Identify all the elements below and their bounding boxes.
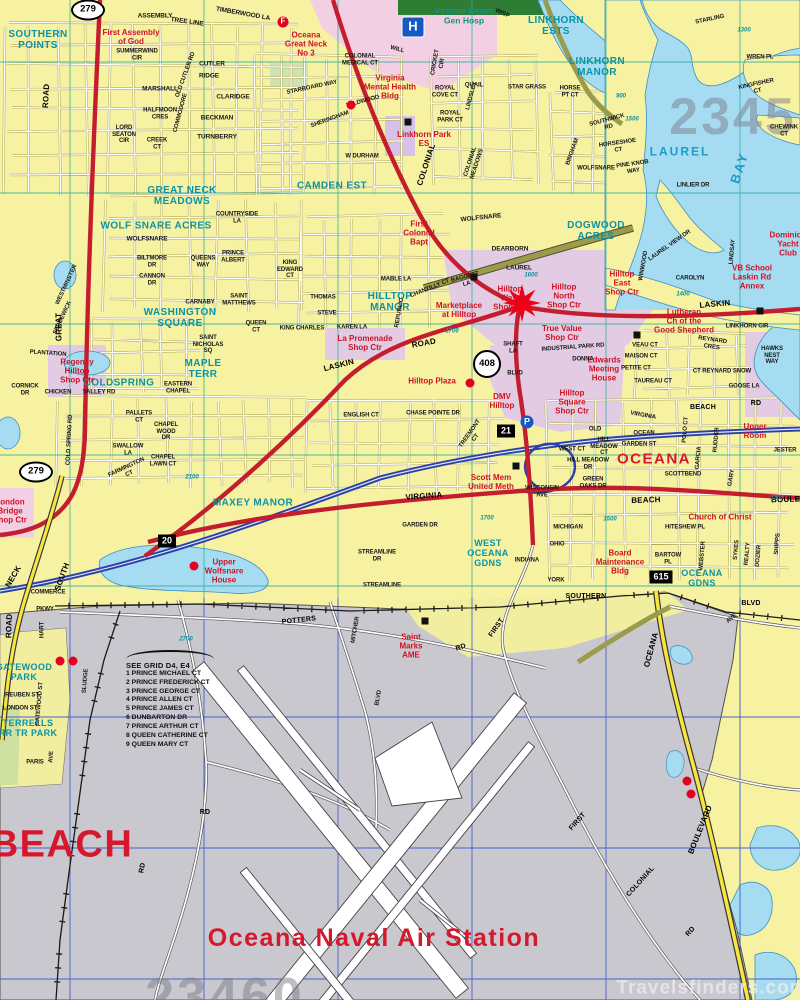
nbhd-label-wolf-snare-acres: WOLF SNARE ACRES	[100, 220, 211, 231]
street-bold-label-virginia: VIRGINIA	[405, 491, 443, 503]
street-label-webster: WEBSTER	[698, 541, 707, 571]
grid-num-label-2345: 2345	[669, 88, 797, 146]
street-bold-label-potters: POTTERS	[281, 615, 316, 626]
poi-label-dmv-hilltop: DMV Hilltop	[490, 393, 515, 411]
fire-station-icon: F	[278, 17, 289, 28]
street-bold-label-colonial: COLONIAL	[625, 865, 656, 899]
nbhd-label-maxey-manor: MAXEY MANOR	[213, 497, 293, 508]
street-bold-label-rd: RD	[138, 862, 148, 874]
street-label-laurel-view-dr: LAUREL VIEW DR	[648, 229, 693, 263]
poi-label-london-bridge-shop-ctr: London Bridge Shop Ctr	[0, 499, 27, 526]
street-label-ct-reynard-snow: CT REYNARD SNOW	[693, 369, 751, 376]
street-label-king-edward-ct: KING EDWARD CT	[277, 260, 303, 280]
grid-item: 7 PRINCE ARTHUR CT	[126, 723, 256, 732]
street-label-pallets-ct: PALLETS CT	[126, 410, 152, 423]
street-label-chapel-wood-dr: CHAPEL WOOD DR	[154, 422, 178, 442]
street-label-royal-park-ct: ROYAL PARK CT	[437, 110, 463, 123]
nbhd-label-coldspring: COLDSPRING	[84, 377, 155, 388]
street-label-turnberry: TURNBERRY	[197, 133, 237, 140]
grid-reference-box: SEE GRID D4, E4 1 PRINCE MICHAEL CT2 PRI…	[126, 650, 256, 749]
street-label-york: YORK	[548, 578, 565, 585]
poi-label-hilltop-west-shop-ctr: Hilltop West Shop Ctr	[493, 286, 527, 313]
range-label-2700: 2700	[179, 637, 192, 644]
poi-label-edwards-meeting-house: Edwards Meeting House	[587, 357, 620, 384]
water-lbl-label-laurel: LAUREL	[650, 145, 711, 158]
nbhd-label-oceana-gdns: OCEANA GDNS	[681, 568, 722, 588]
street-label-will: WILL	[389, 45, 405, 55]
street-label-veau-ct: VEAU CT	[632, 343, 658, 350]
street-label-saint-nicholas-sq: SAINT NICHOLAS SQ	[193, 335, 224, 355]
street-label-tree-line: TREE LINE	[170, 16, 204, 28]
street-label-bartow-pl: BARTOW PL	[655, 552, 681, 565]
big-red-label-oceana-naval-air-station: Oceana Naval Air Station	[208, 924, 540, 952]
street-label-taureau-ct: TAUREAU CT	[634, 379, 672, 386]
poi-label-first-colonial-bapt: First Colonial Bapt	[403, 221, 435, 248]
grid-item: 1 PRINCE MICHAEL CT	[126, 670, 256, 679]
poi-label-upper-room: Upper Room	[743, 423, 766, 441]
street-label-chewink-ct: CHEWINK CT	[770, 124, 798, 137]
street-label-cornick-dr: CORNICK DR	[11, 383, 38, 396]
poi-label-hilltop-east-shop-ctr: Hilltop East Shop Ctr	[605, 271, 639, 298]
street-label-swallow-la: SWALLOW LA	[113, 443, 144, 456]
street-label-cold-spring-rd: COLD SPRING RD	[65, 415, 74, 466]
map-canvas[interactable]: 2792794082021615BEACHOceana Naval Air St…	[0, 0, 800, 1000]
grid-item: 9 QUEEN MARY CT	[126, 741, 256, 750]
street-label-king-charles: KING CHARLES	[280, 326, 324, 333]
range-label-1700: 1700	[480, 516, 493, 523]
poi-dot-marker	[56, 657, 65, 666]
street-label-realty: REALTY	[744, 542, 753, 565]
street-label-valley-rd: VALLEY RD	[83, 390, 116, 397]
street-label-colonial-meadows: COLONIAL MEADOWS	[463, 146, 485, 180]
shield-box-label-20: 20	[158, 535, 176, 548]
street-label-dozier: DOZIER	[755, 545, 764, 568]
grid-item: 3 PRINCE GEORGE CT	[126, 688, 256, 697]
street-bold-label-colonial: COLONIAL	[416, 143, 438, 187]
street-label-ocean: OCEAN	[633, 431, 654, 438]
street-label-garden-dr: GARDEN DR	[402, 523, 437, 530]
street-label-colonial-medical-ct: COLONIAL MEDICAL CT	[342, 53, 378, 66]
street-bold-label-southern: SOUTHERN	[566, 593, 607, 601]
street-label-scottbend: SCOTTBEND	[665, 472, 701, 479]
big-red-label-beach: BEACH	[0, 824, 133, 867]
street-label-cricket-cir: CRICKET CIR	[430, 49, 448, 77]
street-label-wolfsnare: WOLFSNARE	[460, 212, 502, 224]
street-label-rudder: RUDDER	[713, 427, 722, 453]
building-marker	[634, 332, 641, 339]
street-label-queens-way: QUEENS WAY	[191, 255, 216, 268]
street-label-ohio: OHIO	[550, 542, 565, 549]
street-label-hill-meadow-ct: HILL MEADOW CT	[590, 437, 617, 457]
street-label-blvd: BLVD	[507, 371, 523, 378]
street-label-old-cutler-rd: OLD CUTLER RD	[175, 51, 198, 98]
street-label-lord-seaton-cir: LORD SEATON CIR	[112, 125, 136, 145]
street-label-streamline-dr: STREAMLINE DR	[358, 549, 396, 562]
street-label-quail: QUAIL	[465, 83, 483, 90]
street-bold-label-rd: RD	[455, 643, 467, 654]
nbhd-label-west-oceana-gdns: WEST OCEANA GDNS	[467, 538, 508, 568]
street-label-thomas: THOMAS	[310, 295, 335, 302]
street-bold-label-road: ROAD	[411, 337, 437, 350]
street-label-hart: HART	[40, 622, 47, 638]
street-bold-label-great: GREAT	[56, 313, 65, 341]
building-marker	[513, 463, 520, 470]
nbhd-label-gatewood-park: GATEWOOD PARK	[0, 662, 52, 682]
poi-label-scott-mem-united-meth: Scott Mem United Meth	[468, 474, 514, 492]
street-label-treemont-ct: TREEMONT CT	[458, 419, 488, 454]
street-label-halfmoon-cres: HALFMOON CRES	[143, 107, 177, 120]
poi-dot-marker	[190, 562, 199, 571]
street-label-eastern-chapel: EASTERN CHAPEL	[164, 381, 192, 394]
street-label-streamline: STREAMLINE	[363, 583, 401, 590]
street-label-kingfisher-ct: KINGFISHER CT	[735, 77, 780, 99]
street-label-mable-la: MABLE LA	[381, 277, 411, 284]
street-label-sludge: SLUDGE	[82, 669, 91, 694]
grid-item: 4 PRINCE ALLEN CT	[126, 696, 256, 705]
building-marker	[471, 274, 478, 281]
street-label-laurel: LAUREL	[506, 264, 532, 271]
poi-label-la-promenade-shop-ctr: La Promenade Shop Ctr	[337, 335, 392, 353]
street-label-polo-ct: POLO CT	[682, 417, 691, 443]
grid-num-label-23460: 23460	[145, 968, 305, 1000]
street-label-plantation: PLANTATION	[29, 349, 66, 358]
nbhd-label-maple-terr: MAPLE TERR	[185, 358, 222, 380]
street-label-chicken: CHICKEN	[45, 390, 72, 397]
map-labels-layer: 2792794082021615BEACHOceana Naval Air St…	[0, 0, 800, 1000]
street-label-english-ct: ENGLISH CT	[343, 413, 378, 420]
street-bold-label-laskin: LASKIN	[323, 358, 355, 374]
range-label-1300: 1300	[770, 496, 783, 503]
street-label-farmington-ct: FARMINGTON CT	[107, 457, 148, 486]
street-label-wolfsnare: WOLFSNARE	[127, 235, 168, 242]
street-label-lindsley: LINDSLEY	[465, 81, 479, 111]
nbhd-label-washington-square: WASHINGTON SQUARE	[144, 307, 217, 329]
range-label-1300: 1300	[737, 28, 750, 35]
poi-dot-marker	[347, 101, 356, 110]
street-label-blvd: BLVD	[374, 690, 383, 706]
range-label-1700: 1700	[445, 329, 458, 336]
nbhd-label-great-neck-meadows: GREAT NECK MEADOWS	[147, 185, 216, 207]
poi-teal-label-virginia-beach-gen-hosp: Virginia Beach Gen Hosp	[435, 6, 494, 25]
street-label-steve: STEVE	[317, 311, 336, 318]
street-label-sedgewick: SEDGEWICK	[52, 300, 73, 336]
street-label-royal-cove-ct: ROYAL COVE CT	[432, 85, 458, 98]
street-label-gatewood-st: GATEWOOD ST	[35, 682, 46, 726]
street-label-beckman: BECKMAN	[201, 114, 234, 121]
street-label-linkhorn-cir: LINKHORN CIR	[726, 324, 768, 331]
street-bold-label-beach: BEACH	[690, 404, 716, 412]
street-label-saint-matthews: SAINT MATTHEWS	[222, 293, 255, 306]
street-label-ave: AVE	[725, 613, 738, 626]
street-label-garcia: GARCIA	[695, 446, 704, 470]
poi-label-linkhorn-park-es: Linkhorn Park ES	[397, 131, 451, 149]
grid-box-title: SEE GRID D4, E4	[126, 661, 256, 670]
poi-label-board-maintenance-bldg: Board Maintenance Bldg	[596, 550, 644, 577]
street-bold-label-rd: RD	[685, 925, 698, 938]
hospital-icon: H	[402, 17, 425, 38]
street-label-pkwy: PKWY	[36, 607, 54, 614]
street-label-cutler: CUTLER	[199, 60, 225, 67]
street-bold-label-oceana: OCEANA	[643, 632, 661, 669]
street-label-commodore: COMMODORE	[173, 93, 190, 133]
street-label-gary: GARY	[727, 469, 737, 487]
poi-label-church-of-christ: Church of Christ	[688, 514, 751, 523]
poi-label-hilltop-north-shop-ctr: Hilltop North Shop Ctr	[547, 284, 581, 311]
grid-item: 6 DUNBARTON DR	[126, 714, 256, 723]
street-label-starboard-way: STARBOARD WAY	[286, 79, 338, 96]
street-bold-label-boulevard: BOULEVARD	[687, 804, 715, 855]
street-label-wisp: WISP	[494, 8, 510, 20]
street-label-commerce: COMMERCE	[31, 590, 66, 597]
shield-oval-label-279: 279	[19, 462, 53, 483]
shield-box-label-21: 21	[497, 425, 515, 438]
street-label-cannon-dr: CANNON DR	[139, 273, 165, 286]
street-bold-label-rd: RD	[200, 809, 211, 817]
street-bold-label-road: ROAD	[5, 614, 15, 639]
street-label-paris: PARIS	[26, 760, 43, 767]
street-label-prince-albert: PRINCE ALBERT	[221, 250, 245, 263]
poi-label-saint-marks-ame: Saint Marks AME	[399, 634, 422, 661]
poi-dot-marker	[69, 657, 78, 666]
street-label-mitcher: MITCHER	[350, 616, 361, 643]
poi-label-marketplace-at-hilltop: Marketplace at Hilltop	[436, 302, 482, 320]
nbhd-label-terrells-rr-tr-park: TERRELLS RR TR PARK	[0, 718, 57, 738]
range-label-900: 900	[616, 94, 626, 101]
street-label-goose-la: GOOSE LA	[729, 384, 760, 391]
parking-icon: P	[521, 416, 534, 429]
street-label-baggett-la: BAGGETT LA	[450, 271, 481, 291]
nbhd-label-southern-points: SOUTHERN POINTS	[8, 29, 67, 51]
street-label-wolfsnare: WOLFSNARE	[577, 166, 615, 173]
nbhd-label-dogwood-acres: DOGWOOD ACRES	[567, 220, 625, 242]
nbhd-label-linkhorn-manor: LINKHORN MANOR	[569, 56, 625, 78]
street-label-biltmore-dr: BILTMORE DR	[137, 255, 167, 268]
street-label-virginia: VIRGINIA	[630, 410, 657, 421]
poi-dot-marker	[466, 379, 475, 388]
poi-label-oceana-great-neck-no-3: Oceana Great Neck No 3	[285, 32, 327, 59]
street-label-lindsay: LINDSAY	[729, 239, 738, 265]
shield-oval-label-279: 279	[71, 0, 105, 21]
poi-label-upper-wolfsnare-house: Upper Wolfsnare House	[205, 559, 244, 586]
street-label-wildwood: WILDWOOD	[346, 94, 380, 109]
street-label-hawks-nest-way: HAWKS NEST WAY	[758, 346, 786, 366]
street-label-reynard-cres: REYNARD CRES	[697, 335, 728, 352]
street-label-london-st: LONDON ST	[3, 706, 37, 713]
street-label-westminster: WESTMINSTER	[55, 264, 79, 306]
water-lbl-label-bay: BAY	[728, 150, 752, 185]
street-label-w-durham: W DURHAM	[345, 154, 378, 161]
star-marker	[503, 284, 541, 322]
poi-label-dominion-yacht-club: Dominion Yacht Club	[770, 232, 800, 259]
street-label-star-grass: STAR GRASS	[508, 85, 546, 92]
street-label-pine-knob-way: PINE KNOB WAY	[616, 159, 650, 177]
building-marker	[422, 618, 429, 625]
street-label-carnaby: CARNABY	[185, 300, 214, 307]
poi-dot-marker	[683, 777, 692, 786]
street-label-countryside-la: COUNTRYSIDE LA	[216, 211, 258, 224]
street-label-petite-ct: PETITE CT	[621, 366, 651, 373]
grid-item: 5 PRINCE JAMES CT	[126, 705, 256, 714]
street-label-old: OLD	[589, 427, 601, 434]
street-label-marshall: MARSHALL	[142, 85, 178, 92]
street-label-queen-ct: QUEEN CT	[246, 320, 267, 333]
range-label-1400: 1400	[676, 292, 689, 299]
grid-item: 8 QUEEN CATHERINE CT	[126, 732, 256, 741]
street-label-michigan: MICHIGAN	[553, 525, 583, 532]
street-label-chantilly-ct: CHANTILLY CT	[409, 278, 450, 300]
street-label-ridge: RIDGE	[199, 72, 219, 79]
grid-box-items: 1 PRINCE MICHAEL CT2 PRINCE FREDERICK CT…	[126, 670, 256, 749]
street-label-horse-pt-ct: HORSE PT CT	[560, 85, 581, 98]
poi-label-first-assembly-of-god: First Assembly of God	[102, 29, 159, 47]
street-label-southwick-rd: SOUTHWICK RD	[589, 113, 627, 135]
street-label-maison-ct: MAISON CT	[625, 354, 658, 361]
street-label-chapel-lawn-ct: CHAPEL LAWN CT	[150, 454, 177, 467]
street-label-donna: DONNA	[572, 357, 594, 364]
street-label-starling: STARLING	[695, 14, 725, 27]
building-marker	[405, 119, 412, 126]
street-bold-label-south: SOUTH	[54, 562, 72, 592]
street-label-winwood: WINWOOD	[638, 250, 650, 281]
poi-dot-marker	[687, 790, 696, 799]
street-label-green-oaks-dr: GREEN OAKS DR	[580, 476, 607, 489]
watermark-label-travelsfinders-com: Travelsfinders.com	[616, 977, 800, 998]
street-label-jester: JESTER	[774, 448, 797, 455]
nbhd-label-camden-est: CAMDEN EST	[297, 180, 367, 191]
street-label-chase-pointe-dr: CHASE POINTE DR	[406, 411, 460, 418]
nbhd-label-linkhorn-ests: LINKHORN ESTS	[528, 15, 584, 37]
street-bold-label-neck: NECK	[4, 565, 23, 590]
poi-label-virginia-mental-health-bldg: Virginia Mental Health Bldg	[364, 75, 416, 102]
street-label-dearborn: DEARBORN	[492, 245, 529, 252]
street-label-wisconsin-ave: WISCONSIN AVE	[525, 485, 559, 498]
poi-label-vb-school-laskin-rd-annex: VB School Laskin Rd Annex	[728, 265, 776, 292]
street-bold-label-first: FIRST	[568, 811, 588, 832]
brace-glyph	[126, 650, 214, 659]
street-label-creek-ct: CREEK CT	[147, 137, 168, 150]
street-label-garden-st: GARDEN ST	[622, 442, 656, 449]
street-label-west-ct: WEST CT	[559, 447, 585, 454]
street-bold-label-road: ROAD	[42, 84, 52, 109]
street-label-hiteshew-pl: HITESHEW PL	[665, 525, 705, 532]
shield-circle-label-408: 408	[473, 350, 501, 378]
street-label-republic: REPUBLIC	[394, 298, 406, 329]
street-label-shipps: SHIPPS	[774, 533, 783, 555]
street-label-indiana: INDIANA	[515, 558, 539, 565]
street-bold-label-first: FIRST	[488, 617, 507, 639]
street-label-shaft-la: SHAFT LA	[503, 341, 523, 354]
street-label-horseshoe-ct: HORSESHOE CT	[599, 138, 638, 157]
street-label-hill-meadow-dr: HILL MEADOW DR	[567, 457, 609, 470]
range-label-1600: 1600	[524, 273, 537, 280]
nbhd-label-hilltop-manor: HILLTOP MANOR	[368, 291, 413, 313]
poi-label-lutheran-ch-of-the-good-shep: Lutheran Ch of the Good Shepherd	[654, 309, 714, 336]
street-label-sheringham: SHERINGHAM	[310, 110, 350, 130]
street-label-ave: AVE	[48, 751, 56, 763]
poi-label-true-value-shop-ctr: True Value Shop Ctr	[542, 325, 582, 343]
street-label-karen-la: KAREN LA	[337, 325, 367, 332]
range-label-2100: 2100	[185, 475, 198, 482]
street-label-wren-pl: WREN PL	[747, 55, 774, 62]
range-label-1500: 1500	[625, 117, 638, 124]
street-bold-label-beach: BEACH	[631, 496, 661, 506]
street-label-summerwind-cir: SUMMERWIND CIR	[116, 48, 158, 61]
street-bold-label-blvd: BLVD	[741, 600, 760, 608]
street-bold-label-rd: RD	[751, 400, 762, 408]
range-label-1500: 1500	[603, 517, 616, 524]
poi-label-regency-hilltop-shop-ctr: Regency Hilltop Shop Ctr	[60, 359, 94, 386]
street-label-industrial-park-rd: INDUSTRIAL PARK RD	[541, 342, 604, 353]
poi-label-hilltop-plaza: Hilltop Plaza	[408, 378, 456, 387]
street-label-linlier-dr: LINLIER DR	[677, 183, 710, 190]
shield-box-label-615: 615	[649, 571, 672, 584]
street-label-bingham: BINGHAM	[565, 138, 581, 167]
street-label-carolyn: CAROLYN	[676, 276, 704, 283]
street-label-claridge: CLARIDGE	[216, 93, 249, 100]
poi-label-hilltop-square-shop-ctr: Hilltop Square Shop Ctr	[555, 390, 589, 417]
big-red-label-oceana: OCEANA	[617, 452, 691, 469]
street-label-reuben-st: REUBEN ST	[5, 693, 39, 700]
street-label-timberwood-la: TIMBERWOOD LA	[215, 6, 270, 23]
street-bold-label-laskin: LASKIN	[699, 299, 731, 311]
street-bold-label-boulevard: BOULEVARD	[771, 495, 800, 506]
building-marker	[757, 308, 764, 315]
street-label-sykes: SYKES	[733, 540, 741, 560]
grid-item: 2 PRINCE FREDERICK CT	[126, 679, 256, 688]
street-label-assembly: ASSEMBLY	[138, 12, 173, 19]
